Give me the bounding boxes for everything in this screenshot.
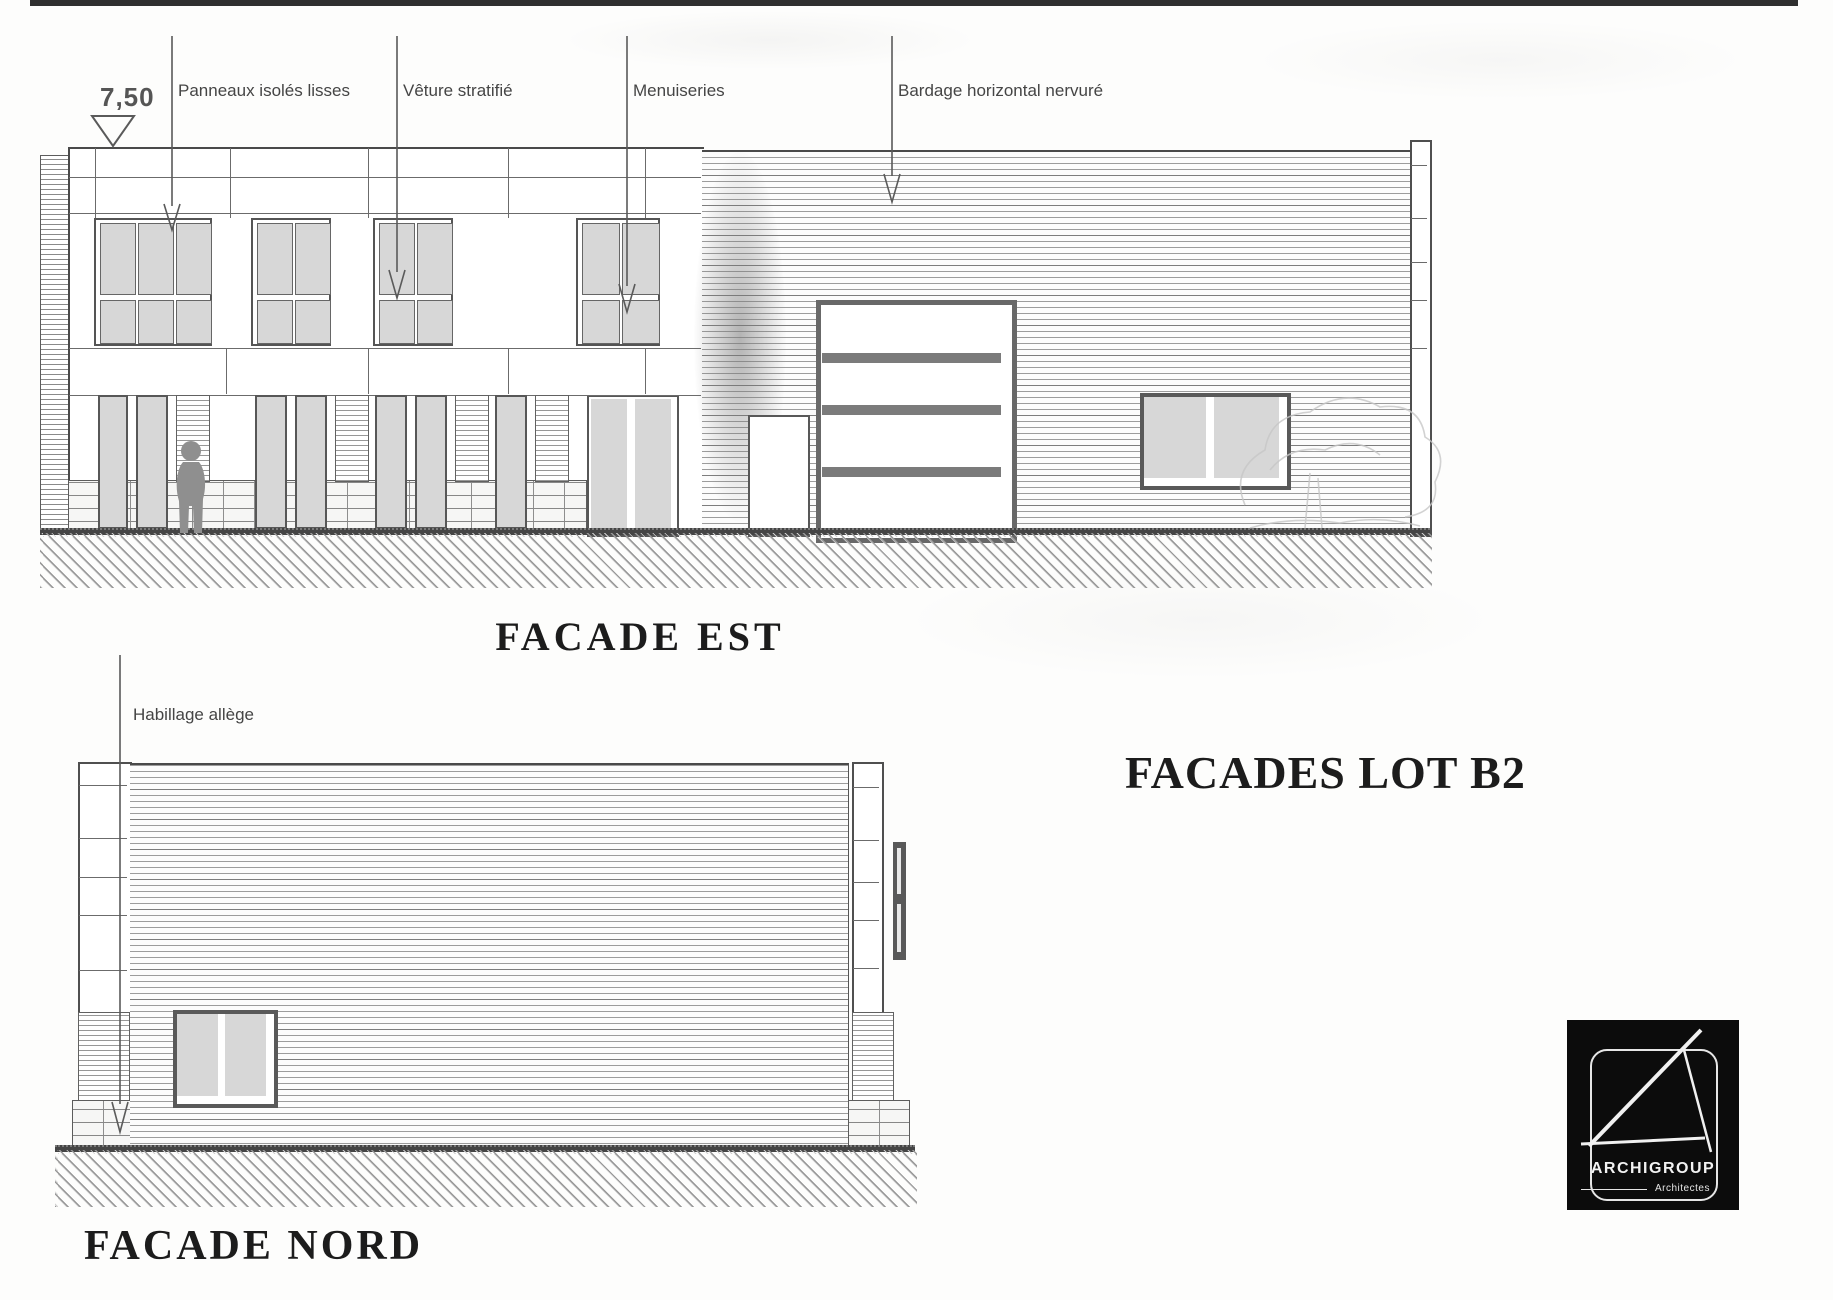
window-pane <box>257 223 293 295</box>
nord-ground-hatch <box>55 1150 917 1207</box>
window-pane <box>257 300 293 344</box>
est-upper-window-group <box>576 218 660 346</box>
archigroup-logo: ARCHIGROUP Architectes <box>1567 1020 1739 1210</box>
est-upper-window-group <box>94 218 212 346</box>
facade-joint <box>79 838 127 839</box>
annotation-line: Menuiseries <box>633 79 820 103</box>
est-lower-glazing <box>495 395 527 529</box>
facade-joint <box>853 882 879 883</box>
facade-joint <box>508 349 509 394</box>
facade-joint <box>645 349 646 394</box>
est-lower-louver <box>335 395 369 482</box>
window-pane <box>225 1014 266 1096</box>
window-pane <box>582 223 620 295</box>
facade-joint <box>853 787 879 788</box>
facade-joint <box>95 148 96 218</box>
facade-joint <box>1411 300 1427 301</box>
est-sectional-door <box>816 300 1017 543</box>
scan-top-bar <box>30 0 1798 6</box>
facade-est-title: FACADE EST <box>440 613 840 660</box>
window-pane <box>138 223 174 295</box>
facade-joint <box>226 349 227 394</box>
facade-joint <box>508 148 509 218</box>
est-lower-glazing <box>255 395 287 529</box>
facade-nord-title: FACADE NORD <box>84 1222 423 1270</box>
facade-joint <box>1411 165 1427 166</box>
nord-left-louver-strip <box>78 1012 130 1102</box>
window-pane <box>622 300 660 344</box>
window-pane <box>582 300 620 344</box>
window-pane <box>295 223 331 295</box>
est-lower-louver <box>455 395 489 482</box>
sectional-door-rail <box>822 467 1001 477</box>
est-lower-glazing <box>415 395 447 529</box>
facade-joint <box>69 213 701 214</box>
window-pane <box>417 223 453 295</box>
facade-joint <box>853 840 879 841</box>
annotation-line: Panneaux isolés lisses <box>178 79 350 103</box>
sheet-title: FACADES LOT B2 <box>1125 746 1526 799</box>
logo-wordmark: ARCHIGROUP <box>1567 1160 1739 1178</box>
logo-subtitle: Architectes <box>1655 1183 1710 1194</box>
est-entrance-door <box>587 395 679 537</box>
facade-joint <box>79 877 127 878</box>
est-right-panel-column <box>1410 140 1432 537</box>
nord-edge-window <box>893 842 906 960</box>
nord-left-brick-pedestal <box>72 1100 132 1149</box>
facade-joint <box>69 348 701 349</box>
annotation-line: Vêture stratifié <box>403 79 559 103</box>
edge-window-slit <box>897 904 901 952</box>
facade-joint <box>853 920 879 921</box>
window-pane <box>100 223 136 295</box>
window-pane <box>1214 397 1279 478</box>
sectional-door-rail <box>822 405 1001 415</box>
annotation-line: Bardage horizontal nervuré <box>898 79 1143 103</box>
window-pane <box>100 300 136 344</box>
est-lower-glazing <box>375 395 407 529</box>
est-service-door <box>748 415 810 537</box>
est-left-gable-strip <box>40 155 69 535</box>
est-lower-louver <box>176 395 210 482</box>
est-lower-glazing <box>136 395 168 529</box>
est-lower-glazing <box>98 395 128 529</box>
nord-right-panel-column <box>852 762 884 1016</box>
window-pane <box>176 223 212 295</box>
facade-joint <box>853 968 879 969</box>
facade-joint <box>368 349 369 394</box>
scan-blotch <box>1250 20 1750 100</box>
nord-left-panel-column <box>78 762 132 1016</box>
window-pane <box>417 300 453 344</box>
facade-joint <box>79 915 127 916</box>
window-pane <box>379 223 415 295</box>
level-marker-value: 7,50 <box>100 82 155 113</box>
est-ground-hatch <box>40 533 1432 588</box>
est-upper-window-group <box>373 218 453 346</box>
edge-window-slit <box>897 848 901 894</box>
nord-window <box>173 1010 278 1108</box>
sectional-door-rail <box>822 353 1001 363</box>
facade-joint <box>79 970 127 971</box>
facade-joint <box>1411 218 1427 219</box>
est-lower-louver <box>535 395 569 482</box>
facade-joint <box>368 148 369 218</box>
level-triangle-icon <box>92 116 134 146</box>
nord-right-brick-pedestal <box>848 1100 910 1149</box>
facade-joint <box>69 177 701 178</box>
window-pane <box>176 300 212 344</box>
facade-joint <box>1411 348 1427 349</box>
facade-joint <box>79 785 127 786</box>
annotation-line: Habillage allège <box>133 703 277 727</box>
door-leaf <box>591 399 627 529</box>
facade-drawing-sheet: 7,50 Panneaux isolés lisses PROMPLAN OPA… <box>0 0 1833 1300</box>
est-hall-window <box>1140 393 1291 490</box>
logo-divider <box>1581 1189 1647 1190</box>
est-upper-window-group <box>251 218 331 346</box>
facade-joint <box>645 148 646 218</box>
facade-joint <box>230 148 231 218</box>
facade-joint <box>1411 262 1427 263</box>
drafting-triangle-icon <box>1567 1020 1739 1210</box>
door-leaf <box>635 399 671 529</box>
window-pane <box>138 300 174 344</box>
window-pane <box>622 223 660 295</box>
window-pane <box>1144 397 1206 478</box>
est-lower-glazing <box>295 395 327 529</box>
window-pane <box>379 300 415 344</box>
window-pane <box>177 1014 218 1096</box>
nord-right-louver-strip <box>852 1012 894 1102</box>
window-pane <box>295 300 331 344</box>
